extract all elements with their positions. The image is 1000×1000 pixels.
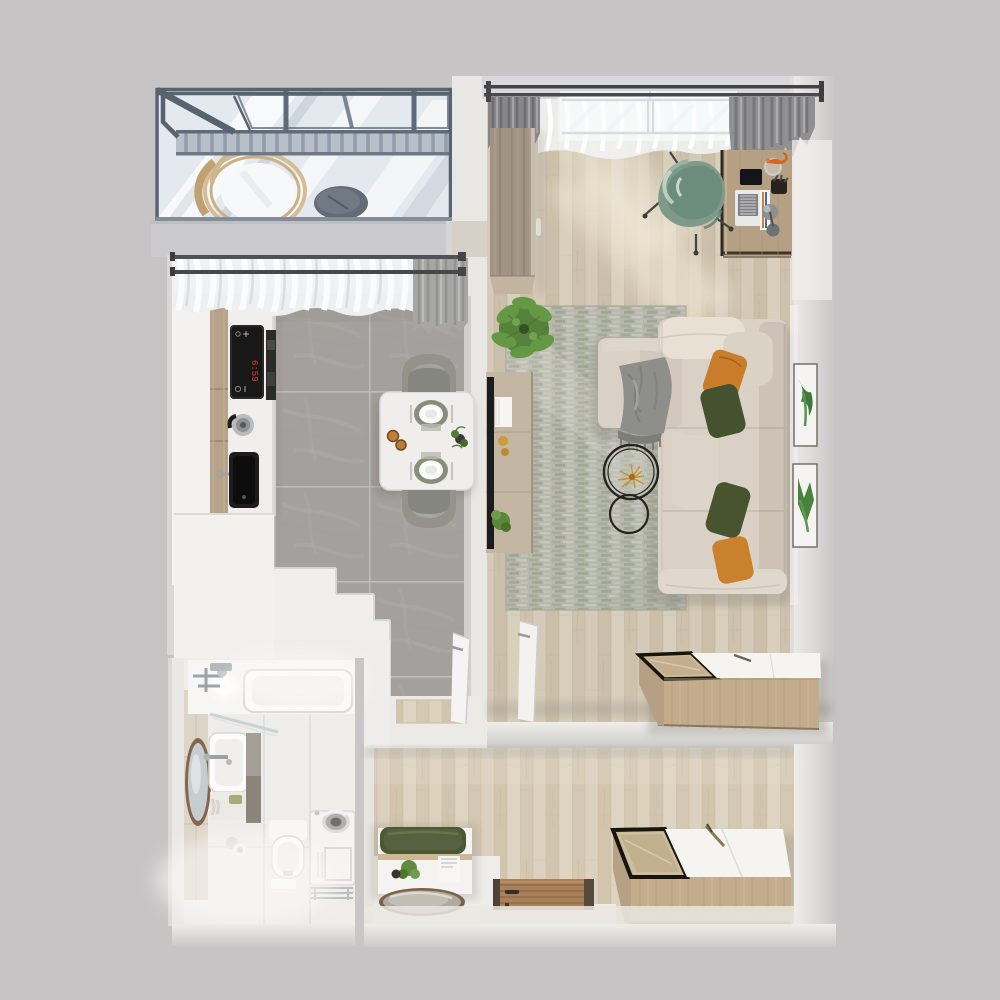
svg-text:6:59: 6:59 [249,360,259,382]
